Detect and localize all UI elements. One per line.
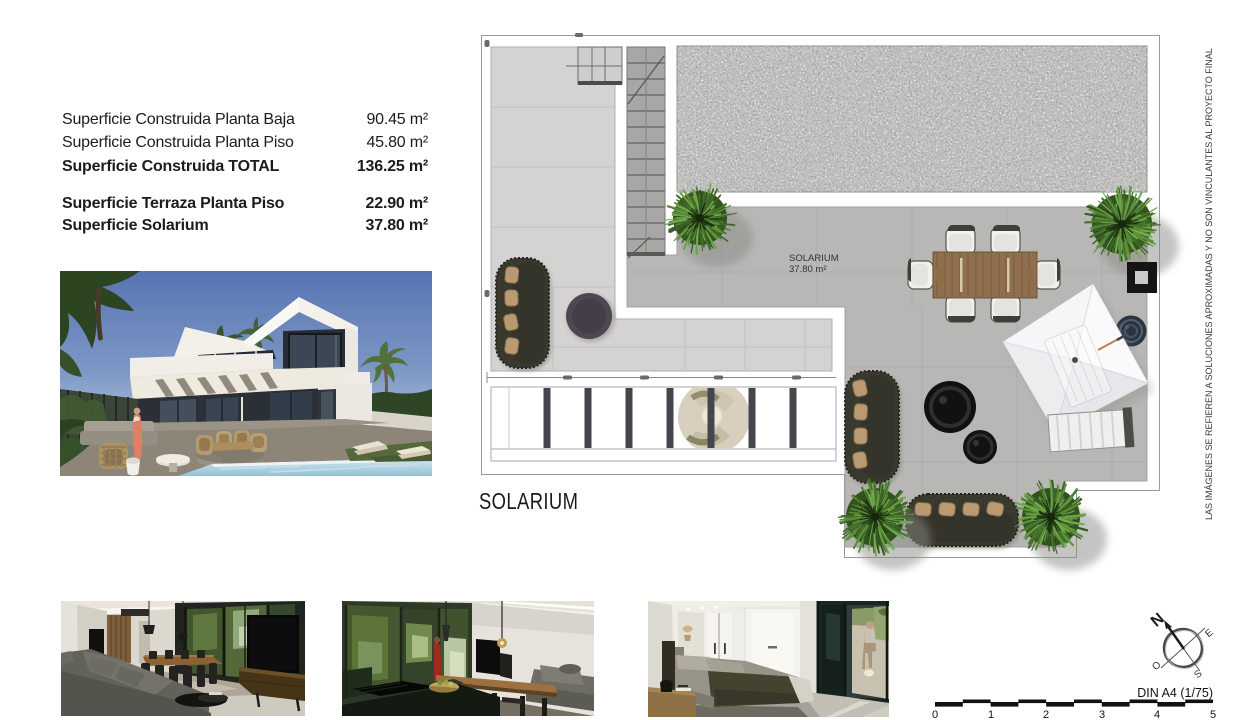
svg-text:3: 3 — [1099, 709, 1105, 720]
svg-text:0: 0 — [932, 709, 938, 720]
svg-text:E: E — [1203, 627, 1215, 640]
svg-text:4: 4 — [1154, 709, 1160, 720]
svg-text:SOLARIUM: SOLARIUM — [789, 253, 839, 264]
svg-text:O: O — [1150, 659, 1163, 673]
svg-text:1: 1 — [988, 709, 994, 720]
svg-text:N: N — [1148, 610, 1168, 630]
svg-text:2: 2 — [1043, 709, 1049, 720]
svg-text:5: 5 — [1210, 709, 1216, 720]
svg-text:37.80 m²: 37.80 m² — [789, 264, 827, 275]
svg-text:DIN A4 (1/75): DIN A4 (1/75) — [1137, 686, 1213, 700]
svg-text:S: S — [1192, 668, 1204, 681]
